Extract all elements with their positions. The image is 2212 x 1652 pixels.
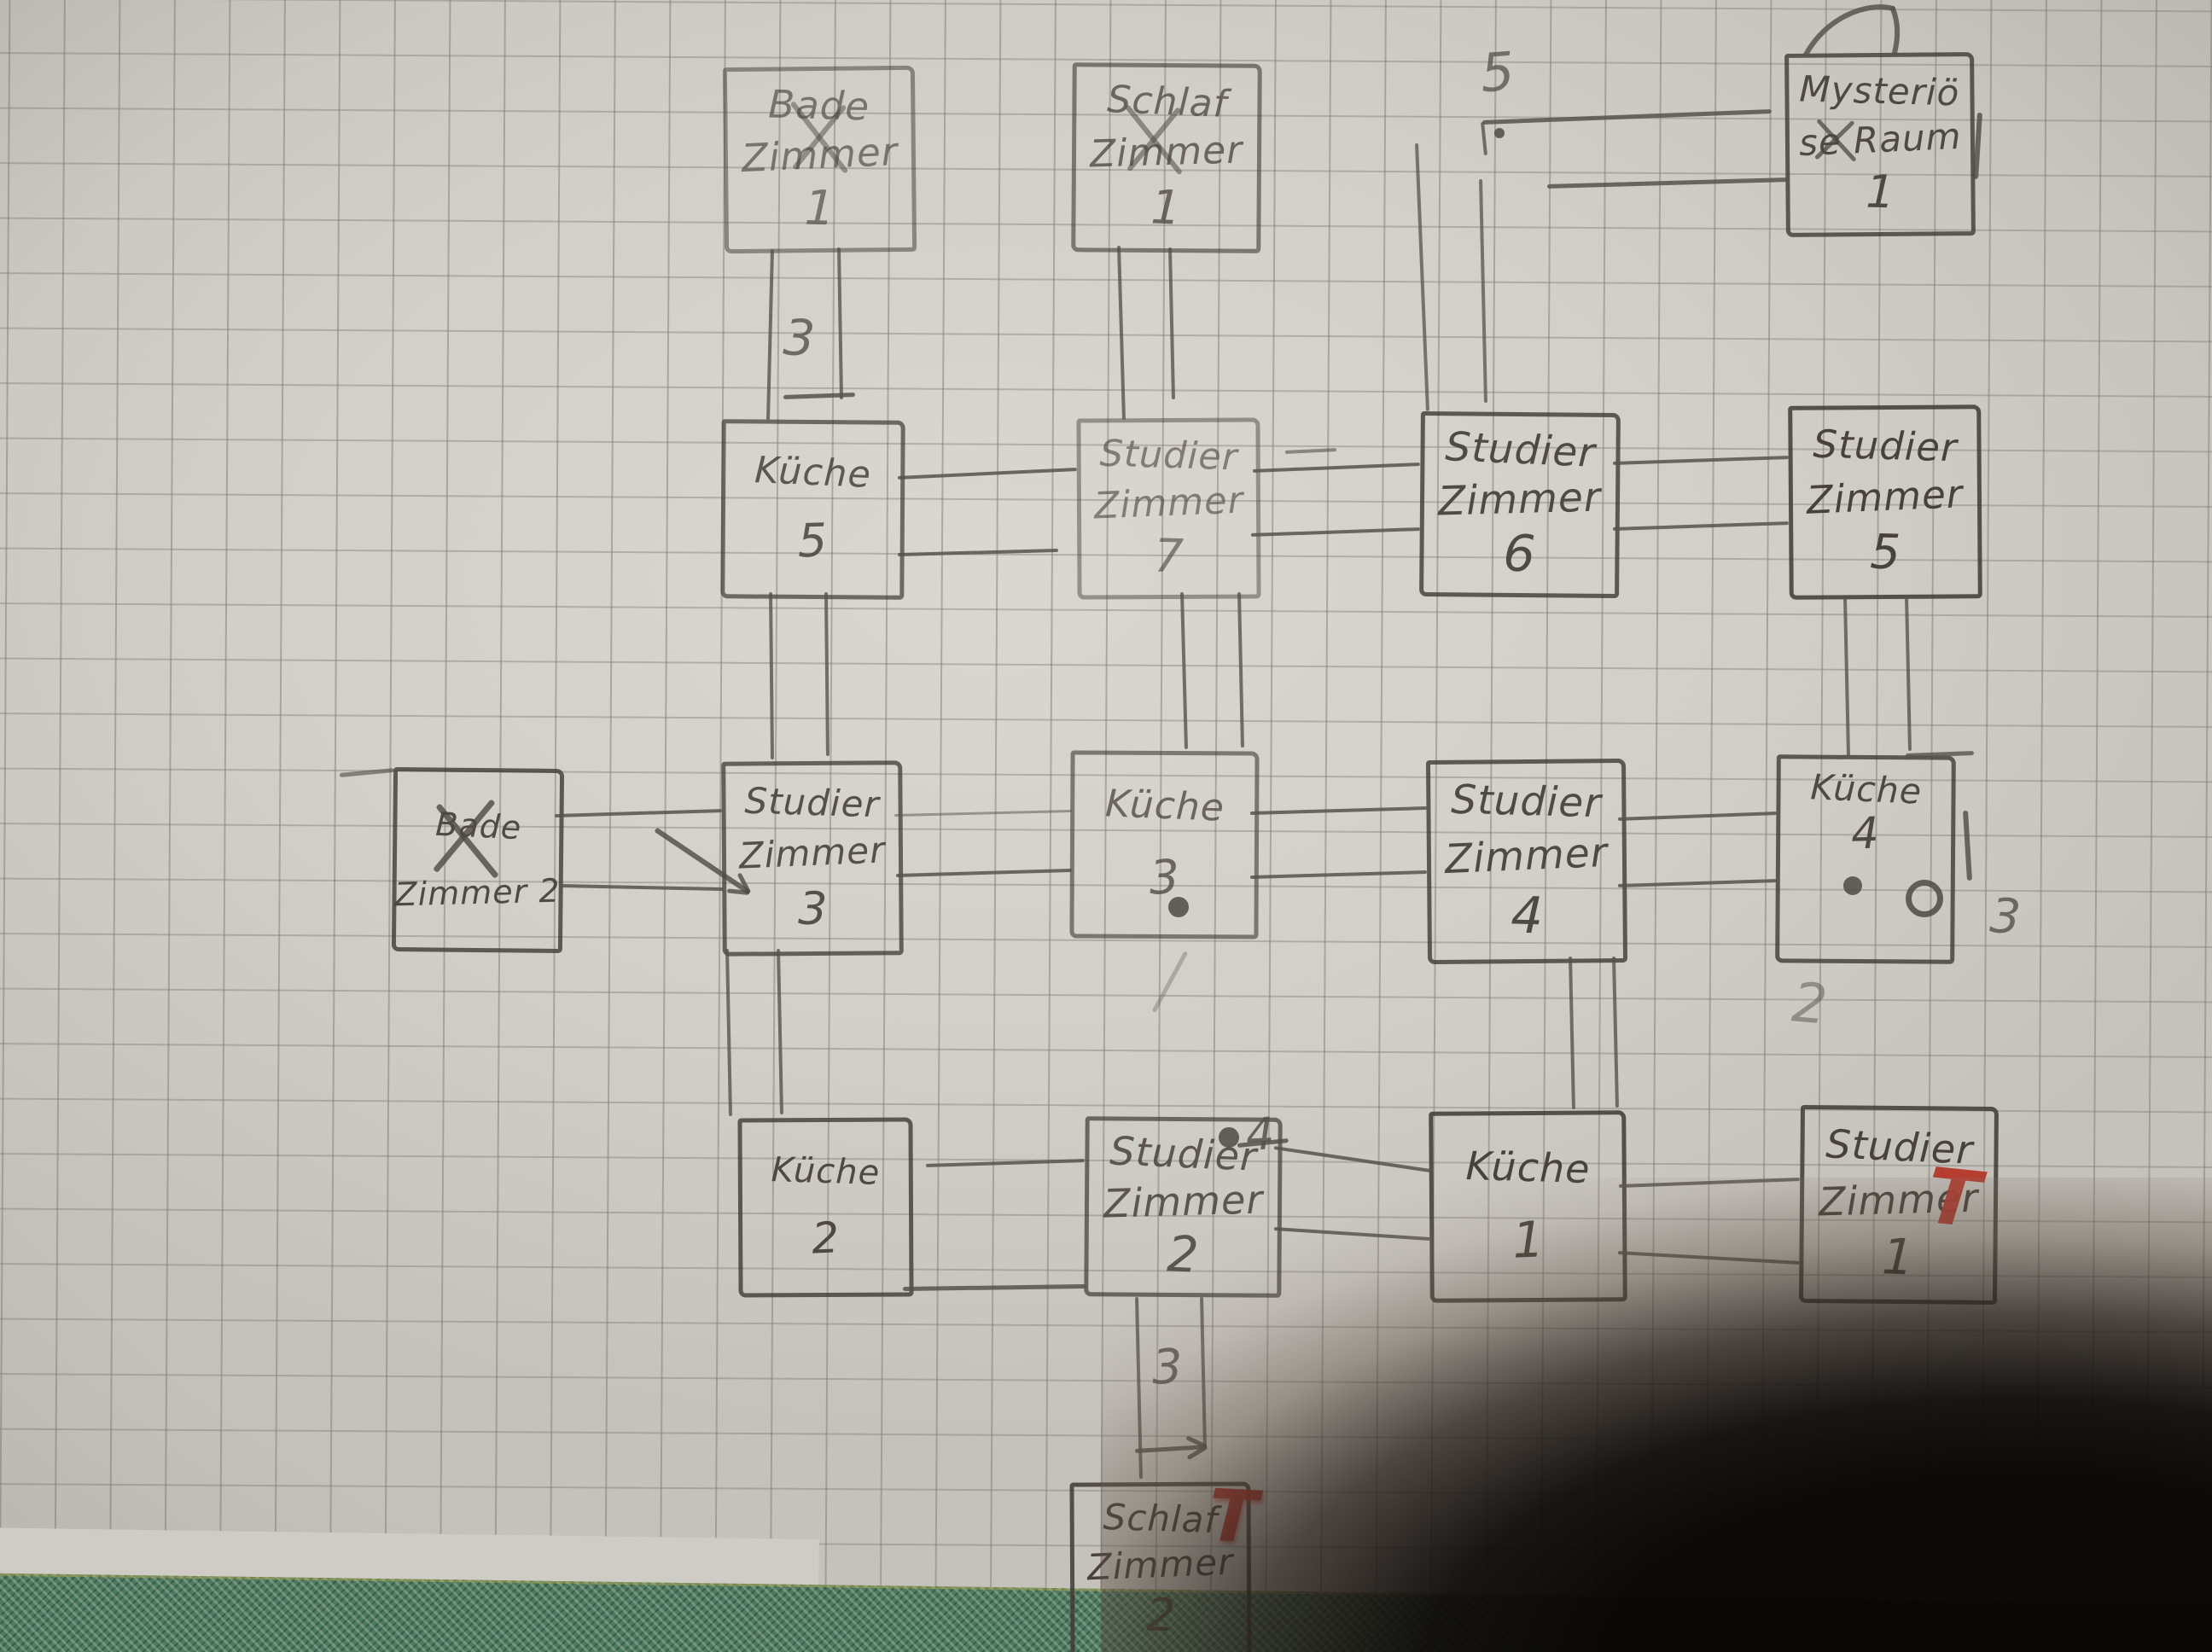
corridor-line [1274, 1227, 1430, 1241]
corridor-line [1843, 597, 1850, 756]
corridor-line [1618, 879, 1777, 887]
corridor-line [1180, 592, 1188, 749]
room-label-line: Zimmer [1438, 476, 1602, 522]
room-label-line: Küche [1809, 769, 1922, 810]
room-number: 1 [1881, 1230, 1916, 1283]
dot-in-kueche-3 [1168, 897, 1189, 917]
corridor-number-top: 5 [1479, 40, 1516, 105]
room-label: StudierZimmer7 [1086, 427, 1252, 590]
room-label-line: Zimmer [1806, 474, 1964, 521]
faint-stroke-below-kueche-3 [1152, 951, 1188, 1012]
room-number: 7 [1153, 532, 1185, 581]
corridor-line [1547, 177, 1789, 189]
corridor-line [1253, 462, 1420, 473]
corridor-line [1613, 456, 1789, 465]
room-number: 6 [1502, 527, 1537, 582]
room-number: 1 [1865, 169, 1895, 218]
room-label: StudierZimmer4 [1435, 768, 1618, 955]
room-label-line: Studier [1099, 434, 1238, 477]
photo-of-hand-drawn-room-map: BadeZimmer1SchlafZimmer1Mysteriöse Raum1… [0, 0, 2212, 1652]
room-number: 5 [797, 516, 829, 566]
corridor-line [1200, 1297, 1207, 1449]
room-kueche-4: Küche4 [1775, 754, 1956, 963]
room-label: StudierZimmer3 [731, 770, 894, 946]
room-label-line: Küche [1104, 785, 1225, 829]
room-label-line: Küche [1465, 1145, 1591, 1190]
room-kueche-2: Küche2 [737, 1117, 913, 1297]
corridor-line [837, 247, 843, 399]
corridor-line [1569, 957, 1575, 1109]
room-label-line: Bade [768, 84, 870, 126]
number-right-of-kueche-4: 3 [1988, 888, 2023, 945]
room-label: Mysteriöse Raum1 [1794, 61, 1966, 228]
room-mysterioeser-raum-1: Mysteriöse Raum1 [1784, 52, 1976, 237]
corridor-line [1906, 751, 1974, 758]
corridor-line [1415, 143, 1429, 411]
room-label: StudierZimmer5 [1797, 414, 1972, 590]
corridor-line [894, 810, 1072, 817]
room-label-line: Zimmer [1103, 1178, 1263, 1224]
door-swing-doodle [1792, 0, 1937, 61]
corridor-line [1479, 179, 1487, 403]
corridor-line [559, 884, 724, 891]
corridor-line [1619, 1178, 1800, 1188]
room-label: Küche1 [1438, 1120, 1617, 1293]
room-studier-zimmer-5: StudierZimmer5 [1788, 404, 1982, 600]
number-below-kueche-4: 2 [1790, 971, 1830, 1037]
corridor-line [1274, 1146, 1431, 1172]
corridor-line [1905, 596, 1912, 751]
room-label-line: Schlaf [1103, 1498, 1219, 1539]
room-number: 2 [811, 1216, 841, 1262]
room-number: 3 [797, 885, 828, 934]
corridor-line [903, 1284, 1086, 1291]
room-label: Küche4 [1784, 764, 1947, 954]
room-label: Küche3 [1079, 759, 1249, 929]
room-studier-zimmer-3: StudierZimmer3 [721, 760, 904, 956]
room-label-line: Studier [1444, 426, 1596, 474]
corridor-number-bade1-kueche5: 3 [782, 308, 816, 368]
corridor-line [1237, 592, 1244, 747]
room-number: 1 [804, 183, 836, 235]
corridor-line [1168, 247, 1175, 399]
corridor-line [555, 809, 722, 817]
corridor-line [896, 869, 1072, 877]
room-bade-zimmer-2: BadeZimmer 2 [392, 767, 564, 953]
room-label-line: Küche [771, 1152, 881, 1191]
corridor-line [1482, 109, 1772, 125]
corridor-line [1613, 521, 1789, 531]
corridor-line [725, 949, 732, 1116]
room-label-line: Mysteriö [1799, 71, 1960, 113]
room-number: 1 [1150, 183, 1182, 233]
room-label: Küche2 [748, 1127, 905, 1288]
corridor-line [898, 549, 1058, 556]
room-label-line: Studier [1812, 424, 1957, 468]
corridor-line [1251, 527, 1420, 537]
corridor-line [926, 1159, 1085, 1167]
wall-tick-left-of-bade-2 [340, 768, 394, 777]
room-label: StudierZimmer6 [1429, 421, 1611, 589]
corridor-line [769, 592, 774, 759]
corridor-line [824, 592, 829, 756]
corridor-line [1285, 448, 1336, 454]
room-kueche-5: Küche5 [720, 419, 905, 599]
room-kueche-3: Küche3 [1069, 750, 1259, 939]
room-number: 2 [1145, 1592, 1176, 1641]
corridor-line [777, 949, 783, 1114]
dot-in-kueche-4-ring [1906, 880, 1943, 917]
room-label-line: Zimmer [1444, 831, 1609, 881]
room-number: 4 [1851, 811, 1881, 858]
corridor-line [783, 393, 855, 399]
dot-in-kueche-4-small [1843, 876, 1862, 895]
room-label-line: Studier [744, 782, 880, 823]
room-number: 2 [1166, 1228, 1200, 1281]
room-label-line: Studier [1451, 779, 1602, 825]
corridor-line [1250, 806, 1427, 815]
pencil-map-drawing: BadeZimmer1SchlafZimmer1Mysteriöse Raum1… [0, 0, 2212, 1652]
corridor-line [1481, 122, 1487, 155]
corridor-line [766, 249, 774, 420]
number-beside-dot-studier-zimmer-2: 4 [1244, 1108, 1275, 1161]
corridor-line [1250, 870, 1427, 879]
room-label-line: Küche [754, 451, 872, 495]
room-kueche-1: Küche1 [1429, 1110, 1627, 1303]
room-studier-zimmer-6: StudierZimmer6 [1419, 411, 1621, 598]
red-t-schlaf-zimmer-2: T [1206, 1474, 1259, 1560]
dot-in-studier-zimmer-2 [1219, 1127, 1239, 1148]
room-label-line: Zimmer [1093, 481, 1244, 526]
room-number: 5 [1869, 528, 1901, 579]
corridor-number-studier2-schlaf2: 3 [1151, 1339, 1184, 1395]
room-label: BadeZimmer 2 [401, 777, 555, 944]
room-bade-zimmer-1: BadeZimmer1 [723, 66, 917, 253]
room-label-line: Zimmer 2 [394, 875, 561, 913]
room-label-line: Zimmer [738, 832, 886, 875]
room-label: BadeZimmer1 [732, 75, 907, 244]
dot-under-corridor-5 [1494, 128, 1505, 138]
red-t-studier-zimmer-1: T [1923, 1151, 1984, 1246]
corridor-line [1618, 1251, 1800, 1265]
tick-right-of-kueche-4 [1963, 811, 1972, 881]
room-studier-zimmer-7: StudierZimmer7 [1076, 417, 1260, 599]
room-studier-zimmer-4: StudierZimmer4 [1426, 759, 1627, 964]
corridor-line [1618, 811, 1777, 821]
room-label: Küche5 [730, 428, 895, 590]
room-number: 4 [1510, 888, 1544, 942]
room-number: 3 [1148, 852, 1180, 903]
corridor-line [1117, 246, 1126, 420]
corridor-line [898, 468, 1077, 480]
corridor-line [1612, 957, 1619, 1108]
room-number: 1 [1511, 1213, 1545, 1266]
